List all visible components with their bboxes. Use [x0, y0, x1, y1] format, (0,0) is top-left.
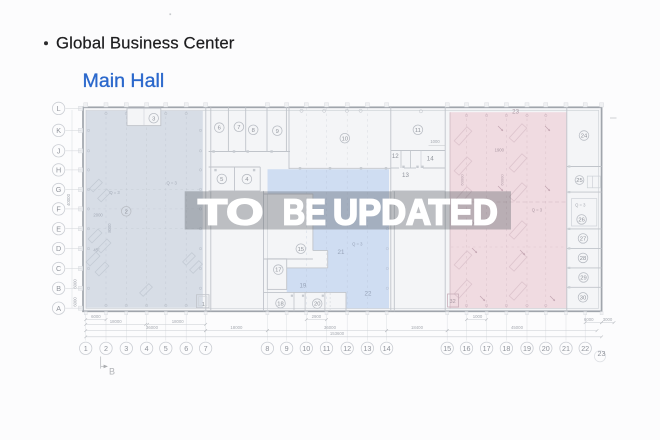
- svg-text:H: H: [56, 166, 61, 175]
- svg-text:6000: 6000: [584, 317, 594, 322]
- svg-text:UPDATED: UPDATED: [333, 192, 498, 233]
- svg-text:15: 15: [443, 344, 451, 353]
- svg-text:20: 20: [542, 344, 550, 353]
- svg-text:10: 10: [342, 136, 348, 142]
- svg-text:11: 11: [415, 128, 421, 134]
- svg-text:4: 4: [145, 344, 149, 353]
- svg-text:16: 16: [463, 344, 471, 353]
- svg-text:8: 8: [252, 128, 255, 134]
- svg-text:22: 22: [581, 344, 589, 353]
- svg-text:5: 5: [220, 177, 223, 183]
- svg-text:24: 24: [581, 134, 588, 140]
- svg-text:18: 18: [502, 344, 510, 353]
- svg-text:36000: 36000: [146, 325, 159, 330]
- svg-text:5: 5: [164, 344, 168, 353]
- svg-text:13: 13: [402, 172, 409, 179]
- svg-text:Q = 3: Q = 3: [352, 242, 363, 247]
- svg-text:45000: 45000: [511, 325, 524, 330]
- svg-text:E: E: [56, 224, 61, 233]
- svg-text:19: 19: [523, 344, 531, 353]
- svg-text:TO: TO: [198, 192, 263, 233]
- svg-text:Main Hall: Main Hall: [83, 70, 165, 92]
- svg-text:23: 23: [512, 109, 519, 116]
- svg-text:D: D: [56, 244, 61, 253]
- svg-text:32: 32: [449, 299, 455, 305]
- svg-text:17: 17: [483, 344, 491, 353]
- svg-text:6: 6: [184, 344, 188, 353]
- svg-text:12: 12: [392, 153, 399, 160]
- svg-text:23: 23: [598, 349, 606, 358]
- svg-text:19: 19: [299, 283, 306, 290]
- svg-text:1900: 1900: [495, 148, 505, 153]
- svg-text:60000: 60000: [500, 174, 505, 186]
- svg-text:Q = 3: Q = 3: [532, 207, 543, 212]
- svg-text:6000: 6000: [72, 297, 77, 307]
- svg-text:30: 30: [580, 295, 586, 301]
- svg-text:3: 3: [124, 344, 128, 353]
- svg-text:18000: 18000: [230, 325, 243, 330]
- svg-text:29: 29: [580, 275, 586, 281]
- svg-text:9: 9: [276, 129, 279, 135]
- svg-text:2000: 2000: [93, 213, 103, 218]
- svg-text:8000: 8000: [107, 223, 112, 233]
- svg-text:Q = 3: Q = 3: [109, 190, 120, 195]
- svg-text:C: C: [56, 264, 61, 273]
- svg-text:L: L: [57, 104, 61, 113]
- svg-text:14: 14: [383, 344, 391, 353]
- svg-text:18000: 18000: [110, 319, 123, 324]
- svg-text:18400: 18400: [411, 325, 424, 330]
- svg-text:Q = 3: Q = 3: [167, 180, 178, 185]
- svg-text:2900: 2900: [312, 314, 322, 319]
- svg-text:B: B: [56, 284, 61, 293]
- svg-text:Q = 3: Q = 3: [575, 203, 586, 208]
- svg-text:40000: 40000: [66, 193, 71, 206]
- svg-text:28: 28: [580, 256, 586, 262]
- svg-text:1000: 1000: [473, 314, 483, 319]
- svg-text:60000: 60000: [460, 174, 465, 186]
- svg-text:17: 17: [275, 268, 281, 274]
- svg-text:18000: 18000: [172, 319, 185, 324]
- svg-text:6000: 6000: [72, 279, 77, 289]
- svg-text:13: 13: [363, 344, 371, 353]
- svg-text:F: F: [56, 205, 61, 214]
- svg-text:153600: 153600: [330, 331, 345, 336]
- svg-text:6: 6: [218, 126, 221, 132]
- svg-text:3000: 3000: [603, 317, 613, 322]
- svg-text:A: A: [56, 304, 61, 313]
- svg-text:1: 1: [84, 344, 88, 353]
- svg-text:8: 8: [265, 344, 269, 353]
- svg-text:Global Business Center: Global Business Center: [56, 34, 235, 53]
- svg-text:26: 26: [578, 217, 584, 223]
- svg-text:15: 15: [298, 247, 304, 253]
- svg-text:27: 27: [580, 236, 586, 242]
- svg-text:9: 9: [285, 344, 289, 353]
- svg-text:45°: 45°: [93, 248, 100, 253]
- svg-text:1: 1: [202, 302, 205, 308]
- svg-text:21: 21: [338, 249, 345, 256]
- svg-text:12: 12: [343, 344, 351, 353]
- svg-text:B: B: [109, 367, 115, 377]
- svg-text:36000: 36000: [324, 325, 337, 330]
- svg-text:J: J: [57, 146, 61, 155]
- svg-text:2: 2: [125, 209, 128, 215]
- svg-text:10: 10: [302, 344, 310, 353]
- svg-text:BE: BE: [283, 192, 326, 233]
- svg-text:20: 20: [314, 302, 320, 308]
- svg-text:18: 18: [277, 301, 283, 307]
- svg-text:7: 7: [237, 125, 240, 131]
- svg-text:11: 11: [323, 344, 330, 353]
- svg-text:3: 3: [152, 116, 155, 122]
- svg-text:25: 25: [576, 178, 582, 184]
- svg-text:K: K: [56, 126, 61, 135]
- svg-text:6000: 6000: [91, 314, 101, 319]
- svg-text:14: 14: [427, 156, 434, 163]
- svg-text:1000: 1000: [430, 139, 440, 144]
- svg-text:22: 22: [365, 291, 372, 298]
- svg-text:2: 2: [104, 344, 108, 353]
- svg-text:7: 7: [204, 344, 208, 353]
- svg-text:21: 21: [562, 344, 570, 353]
- svg-text:G: G: [56, 185, 62, 194]
